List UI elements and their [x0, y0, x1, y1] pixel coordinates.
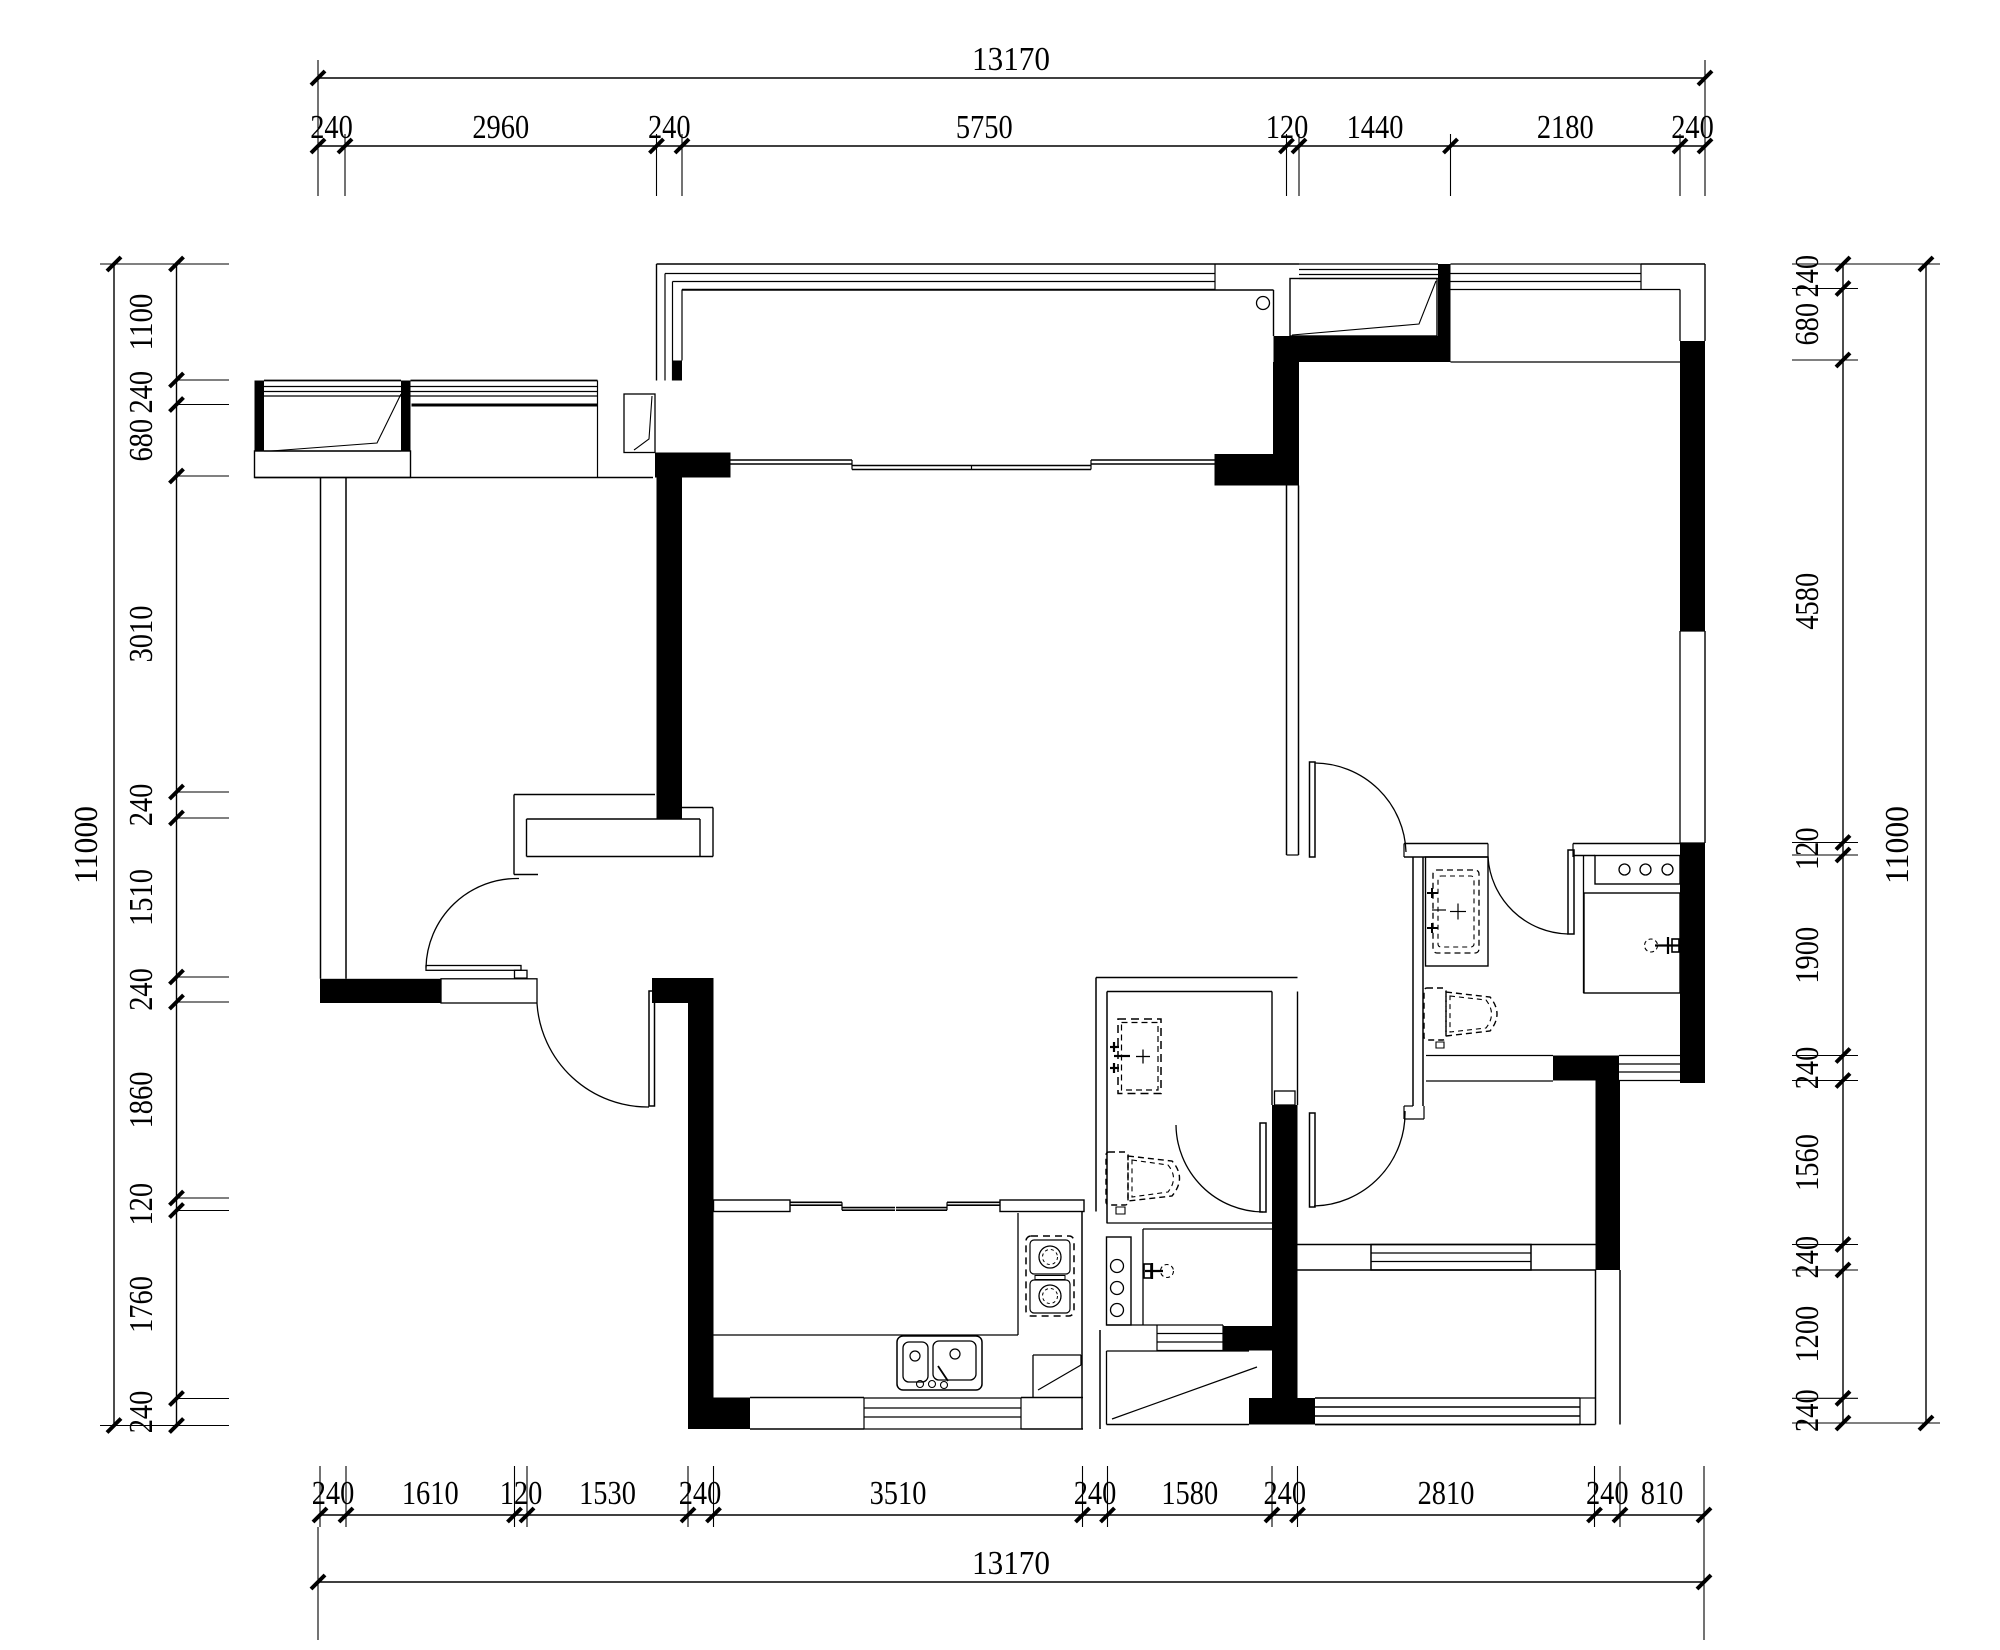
svg-text:240: 240 [1074, 1475, 1117, 1512]
svg-text:240: 240 [123, 784, 160, 827]
svg-text:240: 240 [1263, 1475, 1306, 1512]
svg-text:120: 120 [123, 1183, 160, 1226]
svg-text:120: 120 [1266, 109, 1309, 146]
svg-text:1100: 1100 [123, 294, 160, 351]
svg-text:2180: 2180 [1537, 109, 1594, 146]
svg-text:120: 120 [500, 1475, 543, 1512]
svg-text:1610: 1610 [402, 1475, 459, 1512]
svg-text:5750: 5750 [956, 109, 1013, 146]
svg-text:11000: 11000 [68, 806, 105, 884]
svg-text:1510: 1510 [123, 869, 160, 926]
svg-text:4580: 4580 [1789, 573, 1826, 630]
svg-text:680: 680 [123, 419, 160, 462]
svg-text:240: 240 [1789, 1047, 1826, 1090]
svg-text:240: 240 [123, 1391, 160, 1434]
svg-text:1860: 1860 [123, 1072, 160, 1129]
svg-text:1440: 1440 [1347, 109, 1404, 146]
svg-text:3510: 3510 [870, 1475, 927, 1512]
svg-text:240: 240 [310, 109, 353, 146]
svg-text:1530: 1530 [579, 1475, 636, 1512]
svg-text:1580: 1580 [1161, 1475, 1218, 1512]
svg-text:11000: 11000 [1879, 806, 1916, 884]
svg-text:240: 240 [123, 968, 160, 1011]
svg-text:2960: 2960 [472, 109, 529, 146]
svg-text:240: 240 [679, 1475, 722, 1512]
svg-text:810: 810 [1641, 1475, 1684, 1512]
svg-text:1200: 1200 [1789, 1306, 1826, 1363]
svg-text:680: 680 [1789, 303, 1826, 346]
svg-text:240: 240 [648, 109, 691, 146]
svg-text:2810: 2810 [1418, 1475, 1475, 1512]
svg-text:240: 240 [1586, 1475, 1629, 1512]
svg-text:120: 120 [1789, 827, 1826, 870]
svg-text:13170: 13170 [972, 41, 1050, 78]
svg-text:1760: 1760 [123, 1276, 160, 1333]
svg-text:240: 240 [123, 371, 160, 414]
svg-text:240: 240 [312, 1475, 355, 1512]
svg-text:240: 240 [1671, 109, 1714, 146]
svg-text:240: 240 [1789, 255, 1826, 298]
svg-text:240: 240 [1789, 1236, 1826, 1279]
svg-text:13170: 13170 [972, 1545, 1050, 1582]
svg-text:240: 240 [1789, 1389, 1826, 1432]
svg-text:1560: 1560 [1789, 1134, 1826, 1191]
svg-text:1900: 1900 [1789, 927, 1826, 984]
svg-text:3010: 3010 [123, 606, 160, 663]
